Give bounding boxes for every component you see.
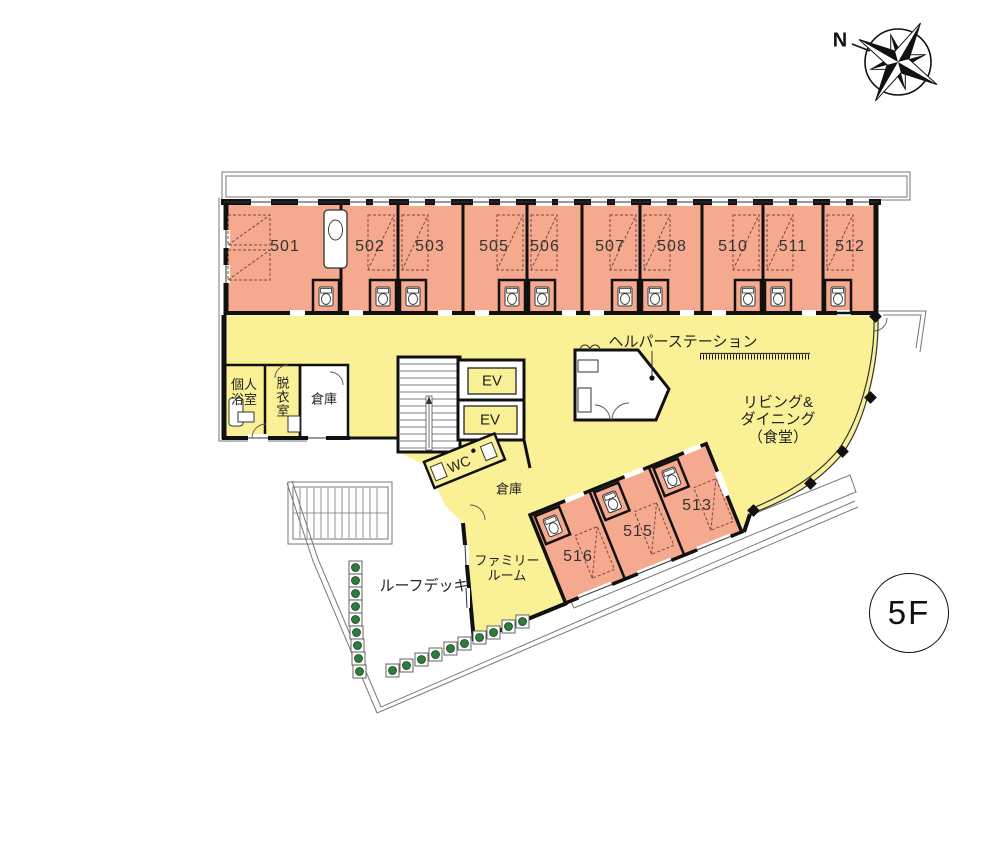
room-label-512: 512 <box>835 238 865 256</box>
elevator-b-label: EV <box>480 411 500 428</box>
changing-room-label: 脱衣室 <box>274 376 289 418</box>
floorplan-page: N 501 502 503 505 506 507 508 510 511 51… <box>0 0 1000 855</box>
room-label-503: 503 <box>415 238 445 256</box>
compass-icon <box>837 1 960 124</box>
elevator-a-label: EV <box>482 372 502 389</box>
living-dining-line3: （食堂） <box>740 429 815 446</box>
family-room-line1: ファミリー <box>474 554 539 569</box>
family-room-line2: ルーム <box>474 569 539 584</box>
floor-badge: 5F <box>869 573 949 653</box>
personal-bath-line2: 浴室 <box>231 393 257 408</box>
roof-deck-label: ルーフデッキ <box>379 577 468 594</box>
personal-bath-line1: 個人 <box>231 378 257 393</box>
storage-label-2: 倉庫 <box>496 483 522 498</box>
room-label-501: 501 <box>270 238 300 256</box>
room-label-505: 505 <box>479 238 509 256</box>
room-label-502: 502 <box>355 238 385 256</box>
top-room-band <box>221 198 881 316</box>
personal-bath-label: 個人 浴室 <box>231 378 257 408</box>
living-dining-line1: リビング& <box>740 394 815 411</box>
storage-label-1: 倉庫 <box>311 393 337 408</box>
room-label-511: 511 <box>779 238 808 256</box>
living-dining-line2: ダイニング <box>740 411 815 428</box>
room-label-515: 515 <box>623 523 653 541</box>
room-label-513: 513 <box>682 497 712 515</box>
helper-station-label: ヘルパーステーション <box>609 333 758 350</box>
room-label-506: 506 <box>530 238 560 256</box>
room-label-510: 510 <box>718 238 748 256</box>
room-label-516: 516 <box>563 548 593 566</box>
north-label: N <box>833 30 847 53</box>
family-room-label: ファミリー ルーム <box>474 554 539 584</box>
living-dining-label: リビング& ダイニング （食堂） <box>740 394 815 446</box>
room-label-508: 508 <box>657 238 687 256</box>
floor-badge-text: 5F <box>888 594 931 632</box>
bathtub-icon <box>324 210 347 268</box>
room-label-507: 507 <box>595 238 625 256</box>
